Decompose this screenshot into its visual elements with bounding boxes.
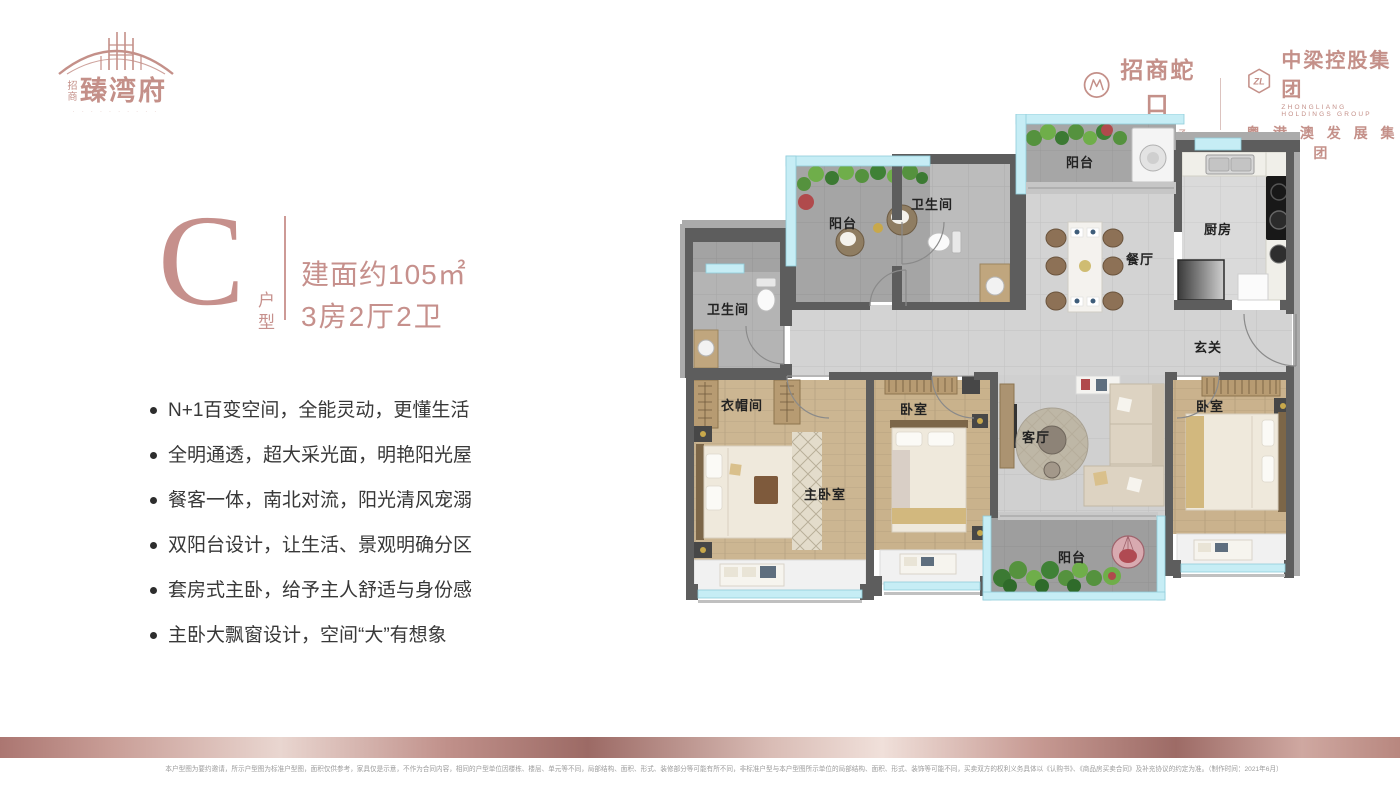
cmsk-m-icon: [1082, 66, 1111, 104]
feature-text: 餐客一体，南北对流，阳光清风宠溺: [168, 490, 472, 512]
brand-logo: 招商 臻湾府 · · · · · · · · · ·: [46, 24, 186, 115]
room-label-kitchen: 厨房: [1204, 222, 1232, 237]
room-label-living: 客厅: [1022, 430, 1050, 445]
room-label-bath-mid: 卫生间: [911, 197, 953, 212]
vanity-mid: [980, 264, 1010, 308]
brand-tagline: · · · · · · · · · ·: [46, 109, 186, 115]
feature-text: N+1百变空间，全能灵动，更懂生活: [168, 400, 469, 422]
feature-item: 全明通透，超大采光面，明艳阳光屋: [150, 445, 520, 467]
feature-text: 双阳台设计，让生活、景观明确分区: [168, 535, 472, 557]
bullet-dot-icon: [150, 407, 157, 414]
feature-item: N+1百变空间，全能灵动，更懂生活: [150, 400, 520, 422]
bullet-dot-icon: [150, 452, 157, 459]
feature-text: 套房式主卧，给予主人舒适与身份感: [168, 580, 472, 602]
kitchen-appliance: [1238, 274, 1268, 300]
feature-item: 餐客一体，南北对流，阳光清风宠溺: [150, 490, 520, 512]
footer-disclaimer: 本户型图为要约邀请，所示户型图为标准户型图，面积仅供参考，家具仅是示意，不作为合…: [165, 763, 1234, 773]
unit-type-label: 户型: [252, 291, 277, 335]
footer-gradient-bar: [0, 737, 1400, 758]
unit-letter: C: [158, 196, 245, 326]
feature-item: 套房式主卧，给予主人舒适与身份感: [150, 580, 520, 602]
unit-rooms: 3房2厅2卫: [301, 295, 444, 335]
unit-divider: [284, 216, 286, 320]
zl-hexagon-icon: ZL: [1245, 62, 1273, 100]
room-label-master: 主卧室: [804, 487, 846, 502]
zl-icon-text: ZL: [1253, 77, 1266, 87]
master-bed: [694, 426, 822, 558]
feature-text: 全明通透，超大采光面，明艳阳光屋: [168, 445, 472, 467]
floorplan-poster: 招商 臻湾府 · · · · · · · · · · 招商蛇口 美 好 生 活 …: [0, 0, 1400, 788]
feature-item: 主卧大飘窗设计，空间“大”有想象: [150, 625, 520, 647]
room-label-bedroom-mid: 卧室: [900, 402, 928, 417]
feature-text: 主卧大飘窗设计，空间“大”有想象: [168, 625, 447, 647]
bullet-dot-icon: [150, 587, 157, 594]
floorplan-svg: 卫生间 阳台 卫生间 阳台 厨房 餐厅 玄关 衣帽间 主卧室 卧室 客厅 卧室 …: [680, 114, 1300, 606]
washing-machine: [1132, 128, 1174, 182]
bridge-arc-icon: [57, 24, 175, 76]
zl-name: 中梁控股集团: [1281, 44, 1400, 102]
vanity-left: [694, 330, 718, 368]
kitchen-fridge: [1178, 260, 1224, 300]
features-list: N+1百变空间，全能灵动，更懂生活 全明通透，超大采光面，明艳阳光屋 餐客一体，…: [150, 400, 520, 670]
room-label-bath-left: 卫生间: [707, 302, 749, 317]
toilet-left: [756, 278, 776, 311]
dining-table: [1046, 222, 1123, 312]
hanging-chair: [1112, 536, 1144, 568]
bullet-dot-icon: [150, 632, 157, 639]
right-bed: [1186, 398, 1292, 512]
room-label-balcony-bottom: 阳台: [1058, 550, 1086, 565]
room-label-bedroom-right: 卧室: [1196, 399, 1224, 414]
brand-name: 臻湾府: [80, 78, 167, 105]
brand-prefix: 招商: [65, 80, 75, 105]
room-label-cloakroom: 衣帽间: [721, 398, 763, 413]
room-label-foyer: 玄关: [1194, 340, 1222, 355]
cmsk-name: 招商蛇口: [1119, 51, 1196, 119]
room-label-dining: 餐厅: [1125, 252, 1154, 267]
bullet-dot-icon: [150, 542, 157, 549]
unit-area: 建面约105㎡: [301, 253, 467, 293]
bullet-dot-icon: [150, 497, 157, 504]
kitchen-sink: [1206, 155, 1254, 174]
room-label-balcony-tl: 阳台: [829, 216, 857, 231]
room-label-balcony-top: 阳台: [1066, 155, 1094, 170]
feature-item: 双阳台设计，让生活、景观明确分区: [150, 535, 520, 557]
